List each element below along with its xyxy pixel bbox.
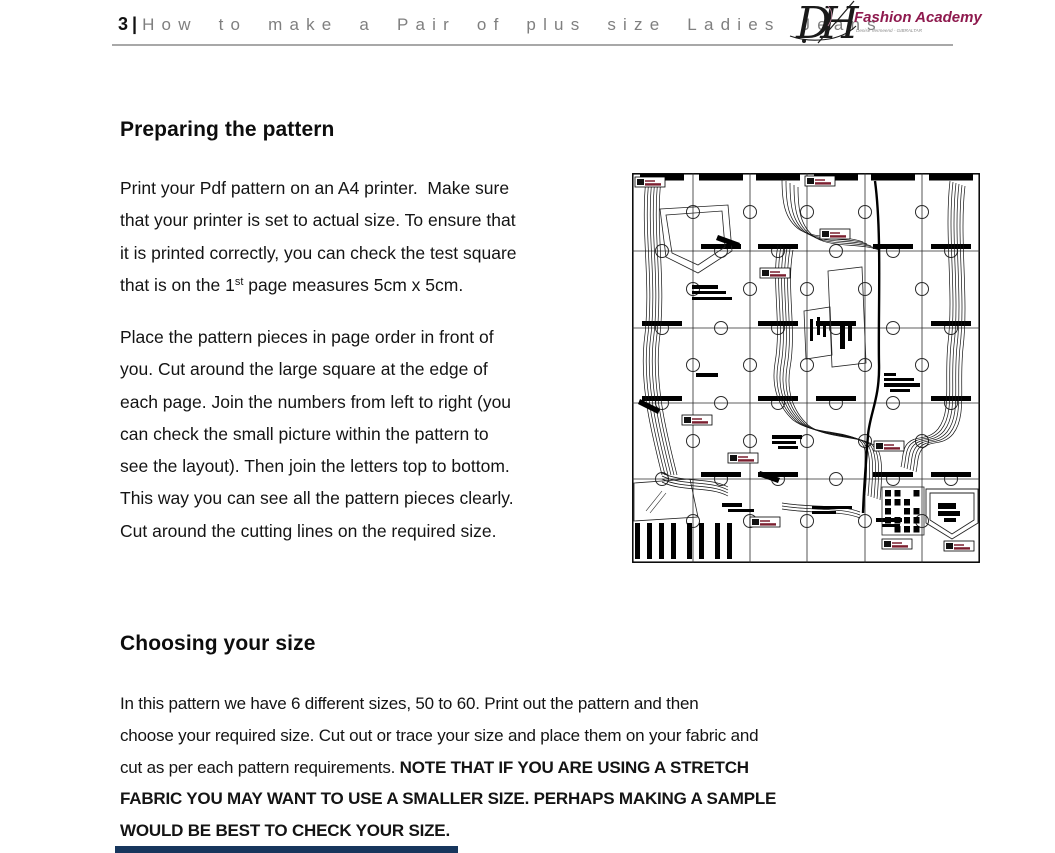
text-line: In this pattern we have 6 different size… xyxy=(120,688,776,720)
text-line: choose your required size. Cut out or tr… xyxy=(120,720,776,752)
page-header: 3 | How to make a Pair of plus size Ladi… xyxy=(118,14,883,35)
pattern-layout-image xyxy=(632,173,980,563)
text-line: WOULD BE BEST TO CHECK YOUR SIZE. xyxy=(120,815,776,847)
text-line: that your printer is set to actual size.… xyxy=(120,204,517,236)
text-line: This way you can see all the pattern pie… xyxy=(120,482,514,514)
text-line: can check the small picture within the p… xyxy=(120,418,514,450)
text-line: it is printed correctly, you can check t… xyxy=(120,237,517,269)
cutoff-next-heading xyxy=(115,846,458,853)
text-line: Place the pattern pieces in page order i… xyxy=(120,321,514,353)
document-page: 3 | How to make a Pair of plus size Ladi… xyxy=(0,0,1055,853)
page-number: 3 xyxy=(118,14,128,35)
text-line: cut as per each pattern requirements. NO… xyxy=(120,752,776,784)
text-line: FABRIC YOU MAY WANT TO USE A SMALLER SIZ… xyxy=(120,783,776,815)
paragraph-assembly-instructions: Place the pattern pieces in page order i… xyxy=(120,321,514,547)
text-line: each page. Join the numbers from left to… xyxy=(120,386,514,418)
svg-text:DH: DH xyxy=(795,0,860,44)
fashion-academy-logo: DH Fashion Academy Denise Vermeend - GIB… xyxy=(788,0,983,44)
paragraph-print-instructions: Print your Pdf pattern on an A4 printer.… xyxy=(120,172,517,301)
text-line: Cut around the cutting lines on the requ… xyxy=(120,515,514,547)
header-separator: | xyxy=(132,14,137,35)
header-rule xyxy=(112,44,953,46)
text-line: Print your Pdf pattern on an A4 printer.… xyxy=(120,172,517,204)
section-heading-preparing: Preparing the pattern xyxy=(120,118,334,142)
text-line: you. Cut around the large square at the … xyxy=(120,353,514,385)
text-line: that is on the 1st page measures 5cm x 5… xyxy=(120,269,517,301)
header-title: How to make a Pair of plus size Ladies J… xyxy=(142,15,883,35)
logo-tagline: Denise Vermeend - GIBRALTAR xyxy=(856,28,923,33)
paragraph-size-instructions: In this pattern we have 6 different size… xyxy=(120,688,776,847)
logo-name: Fashion Academy xyxy=(854,9,982,26)
dh-monogram-icon: DH xyxy=(790,0,860,44)
text-line: see the layout). Then join the letters t… xyxy=(120,450,514,482)
section-heading-choosing: Choosing your size xyxy=(120,632,316,656)
